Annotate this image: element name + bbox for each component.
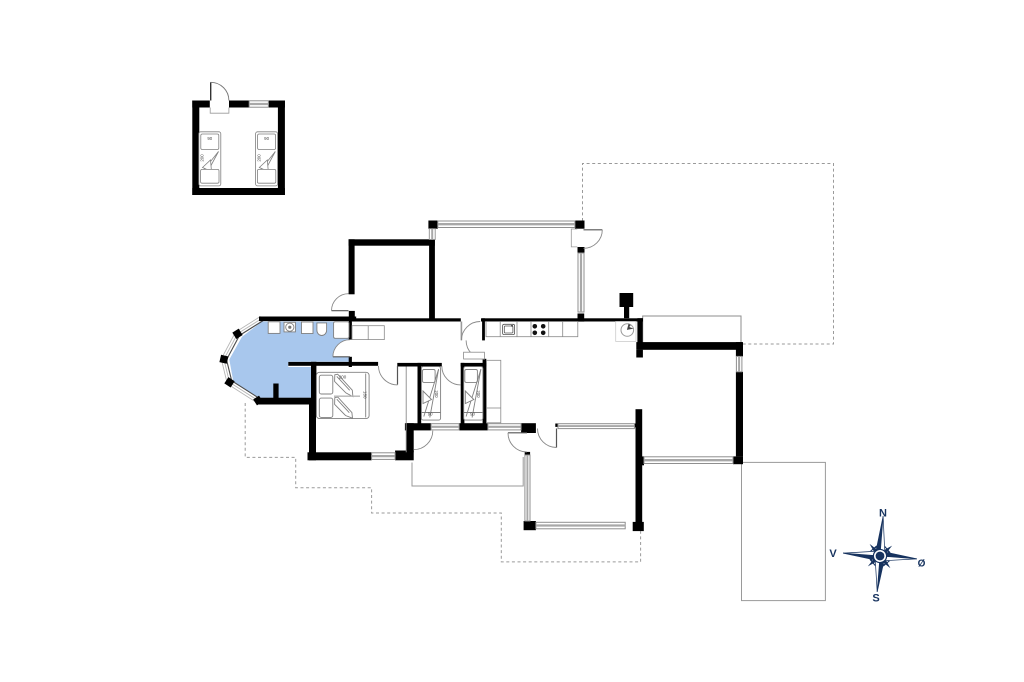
svg-text:V: V <box>829 548 837 560</box>
svg-text:90: 90 <box>207 136 212 141</box>
svg-text:Ø: Ø <box>918 559 926 570</box>
svg-text:200: 200 <box>256 154 261 162</box>
svg-text:200: 200 <box>476 390 481 398</box>
svg-text:N: N <box>879 508 887 520</box>
svg-text:200: 200 <box>200 154 205 162</box>
svg-text:90: 90 <box>470 411 475 416</box>
svg-text:S: S <box>872 593 879 605</box>
svg-text:90: 90 <box>264 136 269 141</box>
svg-text:180: 180 <box>362 391 367 399</box>
svg-text:90: 90 <box>428 411 433 416</box>
svg-text:200: 200 <box>434 390 439 398</box>
svg-text:200: 200 <box>339 375 347 380</box>
